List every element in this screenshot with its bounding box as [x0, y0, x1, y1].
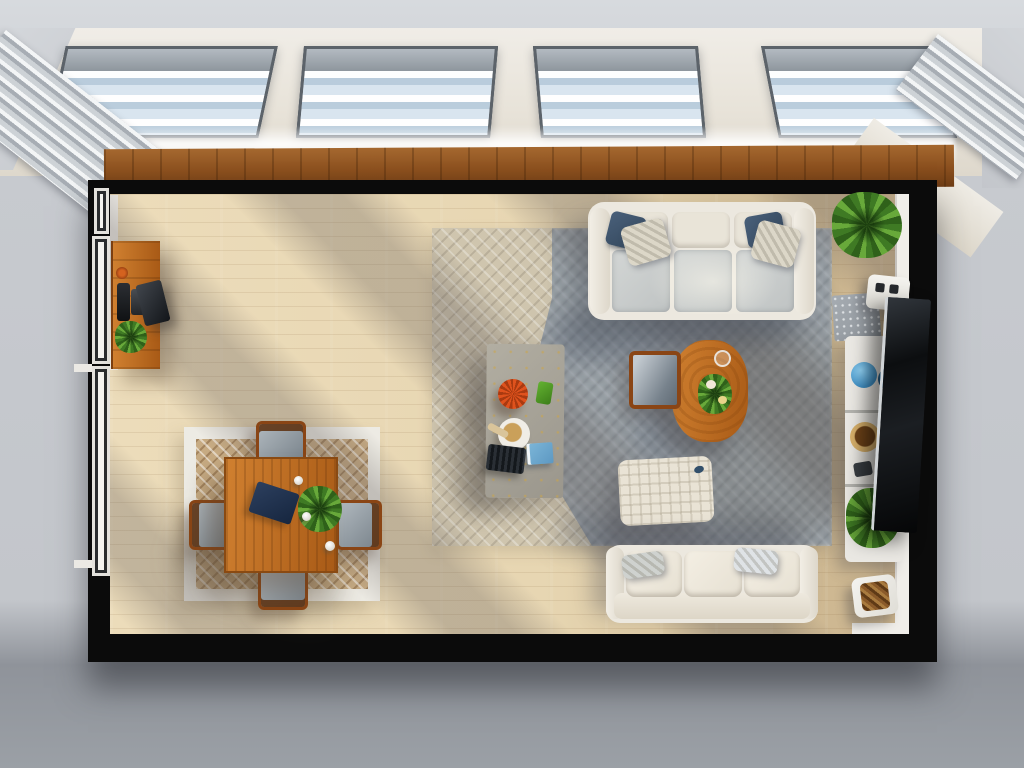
dining-chair-right [336, 500, 382, 550]
roller-blind [63, 49, 274, 73]
sunlight-patch [648, 242, 778, 314]
table-cup [294, 476, 303, 485]
decor-bottles [117, 283, 130, 321]
sofa-top [588, 202, 816, 320]
log-basket [851, 573, 900, 618]
roller-blind [305, 49, 495, 73]
dark-decor-item [853, 461, 873, 478]
sofa-arm-right [794, 208, 814, 314]
yellow-flower [718, 396, 727, 404]
window-hinge-stub [74, 364, 92, 372]
white-flower [706, 380, 716, 389]
coffee-table [485, 344, 565, 499]
dining-centerpiece-plant [298, 486, 342, 532]
left-window-frame-2 [92, 366, 110, 576]
roller-blind [536, 49, 697, 73]
speaker-driver [889, 284, 899, 294]
laptop-keyboard [486, 444, 527, 474]
table-cup [302, 512, 311, 521]
bottom-right-trim [852, 623, 909, 634]
skylight-window-3 [533, 46, 706, 138]
decor-orange-bowl [116, 267, 128, 279]
living-room-render [0, 0, 1024, 768]
blue-sphere-decor [851, 362, 877, 388]
sofa-bottom [606, 545, 818, 623]
coral-decor-bowl [498, 379, 528, 409]
speaker-driver [875, 283, 885, 293]
left-window-frame-top [94, 188, 109, 234]
left-window-frame-1 [92, 236, 110, 364]
skylight-window-2 [296, 46, 498, 138]
fire-logs [859, 580, 890, 611]
flower-bouquet [698, 374, 732, 414]
armchair [629, 351, 681, 409]
table-cup [325, 541, 335, 551]
drinking-glass [714, 350, 731, 367]
plant-top-right [832, 192, 902, 258]
blue-book [526, 442, 553, 465]
sofa-arm-left [590, 208, 610, 314]
sideboard-plant [115, 321, 147, 353]
window-hinge-stub [74, 560, 92, 568]
striped-pillow [733, 547, 779, 575]
